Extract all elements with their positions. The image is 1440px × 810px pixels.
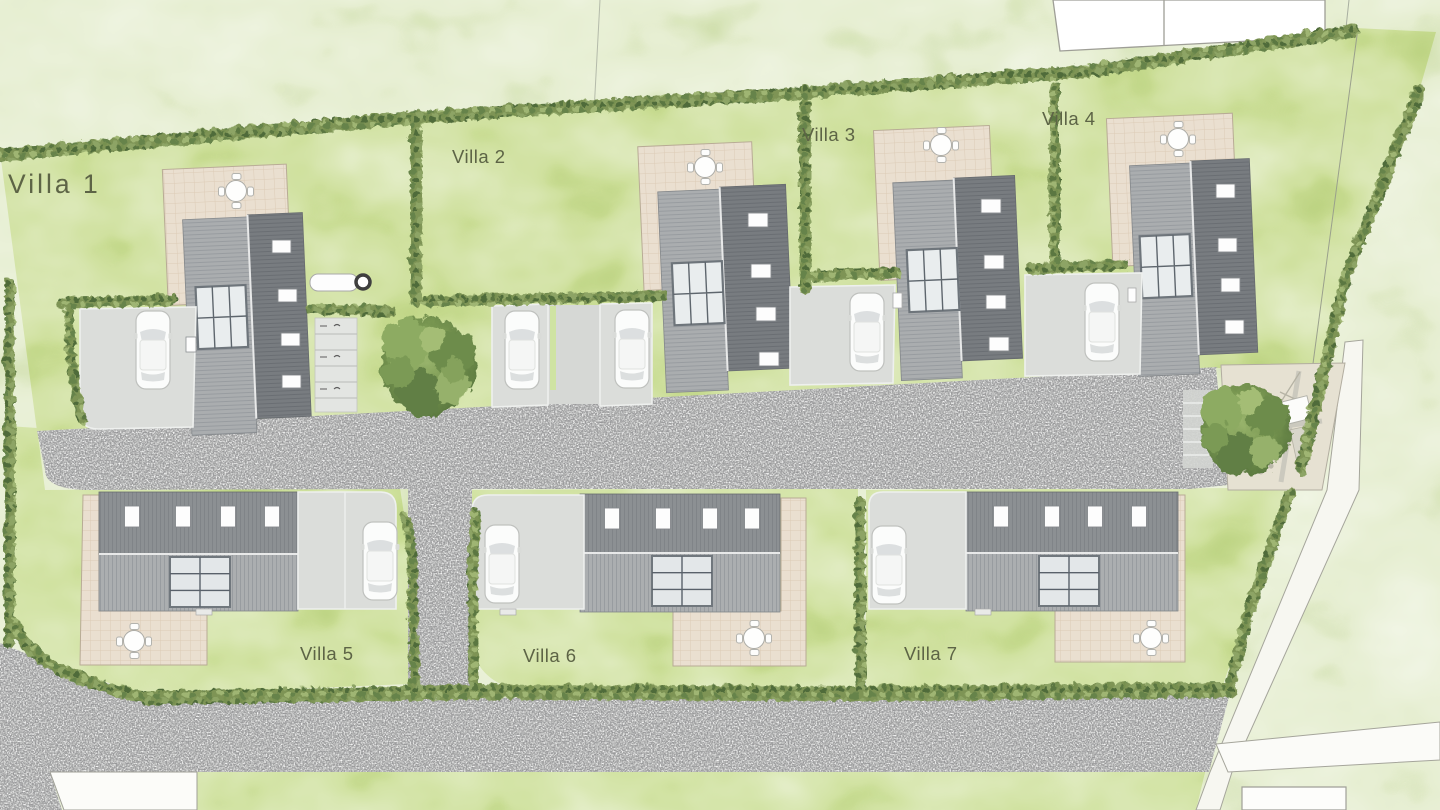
svg-text:Villa 1: Villa 1 (8, 169, 101, 199)
svg-text:Villa 5: Villa 5 (300, 643, 354, 664)
svg-text:Villa 2: Villa 2 (452, 146, 506, 167)
svg-text:Villa 3: Villa 3 (802, 124, 856, 145)
svg-text:Villa 6: Villa 6 (523, 645, 577, 666)
svg-text:Villa 4: Villa 4 (1042, 108, 1096, 129)
svg-text:Villa 7: Villa 7 (904, 643, 958, 664)
